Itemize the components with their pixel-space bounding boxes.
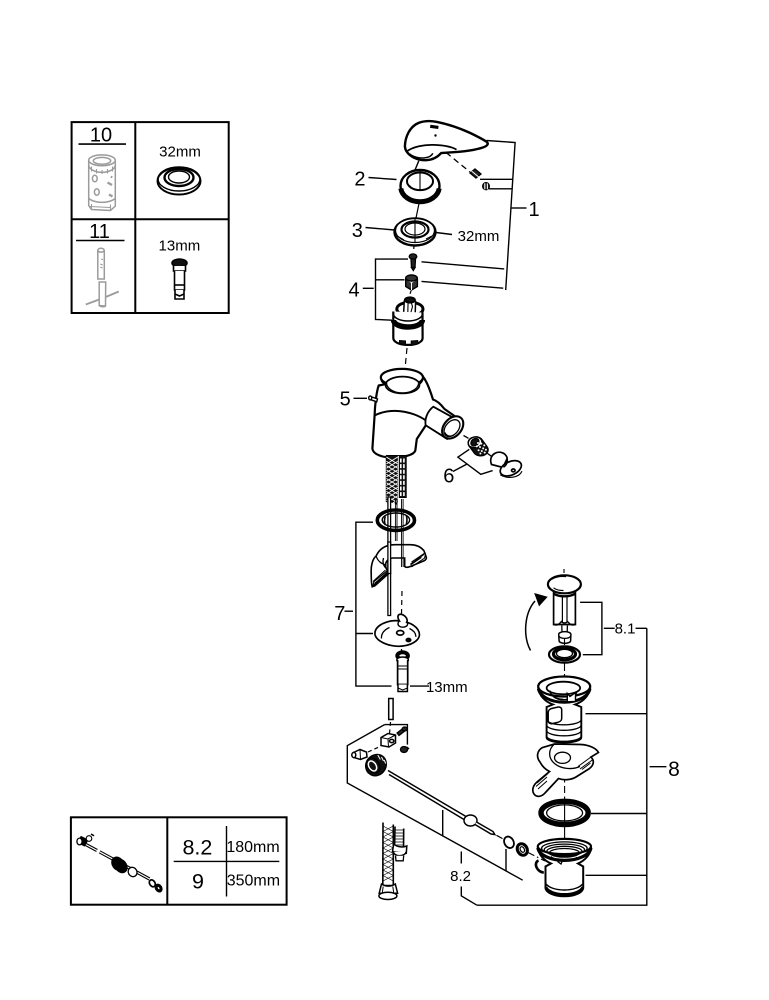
svg-text:6: 6: [443, 466, 454, 488]
svg-text:4: 4: [348, 279, 359, 301]
svg-text:3: 3: [352, 220, 363, 242]
svg-text:1: 1: [528, 199, 539, 221]
svg-text:7: 7: [334, 603, 345, 625]
svg-text:2: 2: [354, 168, 365, 190]
svg-text:8: 8: [668, 758, 680, 781]
svg-text:8.2: 8.2: [450, 868, 471, 885]
svg-text:13mm: 13mm: [426, 679, 468, 696]
svg-text:8.2: 8.2: [182, 836, 212, 860]
svg-text:180mm: 180mm: [226, 839, 279, 856]
svg-text:350mm: 350mm: [227, 873, 280, 890]
svg-text:5: 5: [340, 388, 351, 410]
svg-text:32mm: 32mm: [458, 228, 500, 245]
svg-text:8.1: 8.1: [615, 621, 636, 638]
svg-text:32mm: 32mm: [159, 144, 201, 161]
svg-text:13mm: 13mm: [159, 238, 201, 255]
svg-text:9: 9: [192, 869, 204, 893]
